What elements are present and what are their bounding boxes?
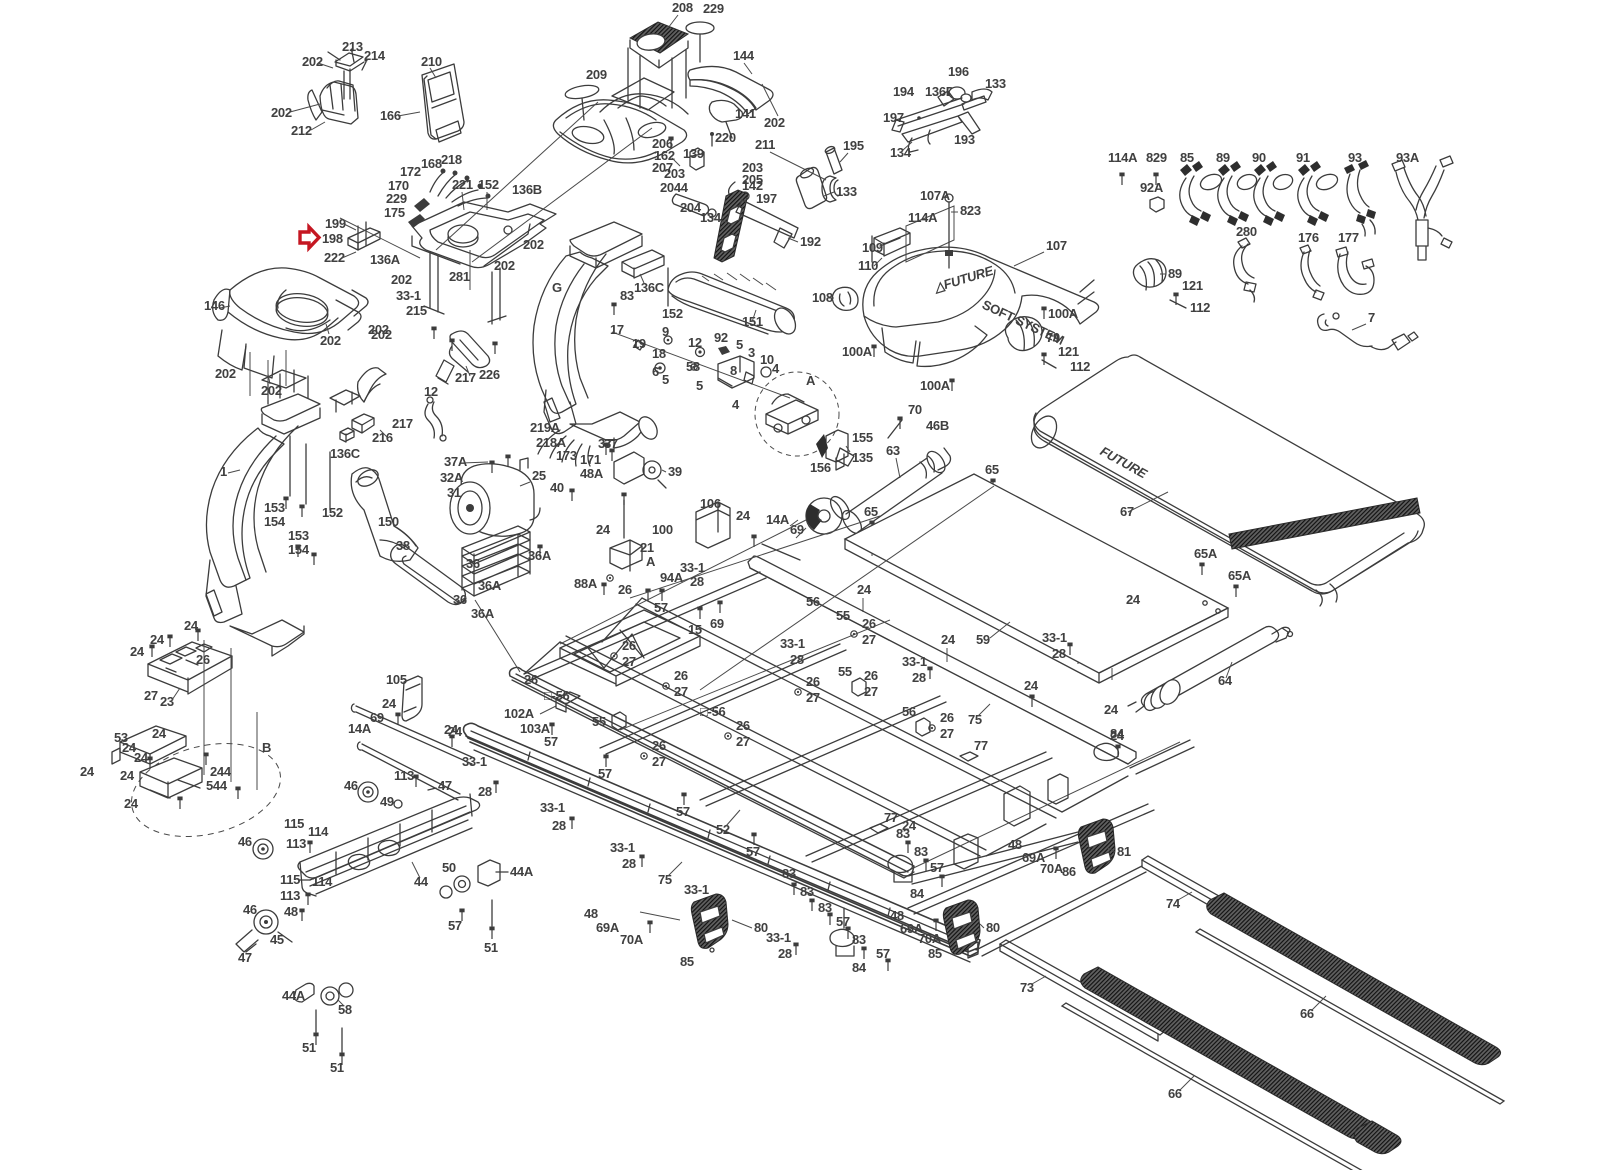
svg-text:197: 197 [756, 191, 777, 206]
svg-text:112: 112 [1070, 359, 1090, 374]
svg-text:133: 133 [985, 76, 1006, 91]
svg-text:70: 70 [908, 402, 922, 417]
svg-text:48: 48 [284, 904, 298, 919]
svg-text:24: 24 [736, 508, 751, 523]
svg-text:133: 133 [836, 184, 857, 199]
svg-text:213: 213 [342, 39, 363, 54]
svg-text:823: 823 [960, 203, 981, 218]
svg-text:112: 112 [1190, 300, 1210, 315]
svg-text:46: 46 [238, 834, 252, 849]
svg-text:196: 196 [948, 64, 969, 79]
svg-text:202: 202 [302, 54, 323, 69]
svg-text:204: 204 [680, 200, 702, 215]
svg-text:544: 544 [206, 778, 228, 793]
svg-text:26: 26 [864, 668, 878, 683]
svg-text:217: 217 [392, 416, 413, 431]
svg-text:113: 113 [286, 836, 306, 851]
svg-text:26: 26 [674, 668, 688, 683]
svg-text:51: 51 [484, 940, 498, 955]
svg-text:28: 28 [1052, 646, 1066, 661]
svg-text:67: 67 [1120, 504, 1134, 519]
svg-text:74: 74 [1166, 896, 1181, 911]
svg-text:114: 114 [312, 874, 333, 889]
svg-text:93: 93 [1348, 150, 1362, 165]
svg-text:281: 281 [449, 269, 470, 284]
svg-text:114A: 114A [1108, 150, 1138, 165]
svg-text:44: 44 [414, 874, 429, 889]
svg-text:24: 24 [596, 522, 611, 537]
svg-text:219A: 219A [530, 420, 561, 435]
svg-text:33-1: 33-1 [780, 636, 805, 651]
svg-text:26: 26 [736, 718, 750, 733]
svg-text:12: 12 [424, 384, 438, 399]
svg-text:33-1: 33-1 [396, 288, 421, 303]
svg-text:199: 199 [325, 216, 346, 231]
svg-text:105: 105 [386, 672, 407, 687]
svg-text:47: 47 [238, 950, 252, 965]
svg-text:208: 208 [672, 0, 693, 15]
svg-text:26: 26 [622, 638, 636, 653]
svg-text:107: 107 [1046, 238, 1067, 253]
svg-text:44A: 44A [510, 864, 534, 879]
svg-text:173: 173 [556, 448, 577, 463]
svg-text:171: 171 [580, 452, 601, 467]
svg-text:27: 27 [940, 726, 954, 741]
svg-text:4: 4 [732, 397, 740, 412]
svg-text:115: 115 [280, 872, 300, 887]
svg-text:64: 64 [1218, 673, 1233, 688]
svg-text:100A: 100A [1048, 306, 1079, 321]
svg-text:83: 83 [914, 844, 928, 859]
svg-text:33-1: 33-1 [680, 560, 705, 575]
svg-text:65: 65 [864, 504, 878, 519]
svg-text:91: 91 [1296, 150, 1310, 165]
svg-text:65: 65 [985, 462, 999, 477]
svg-text:24: 24 [80, 764, 95, 779]
svg-text:3: 3 [748, 345, 755, 360]
svg-text:66: 66 [1168, 1086, 1182, 1101]
svg-text:136C: 136C [634, 280, 665, 295]
svg-text:85: 85 [928, 946, 942, 961]
svg-text:92: 92 [714, 330, 728, 345]
svg-text:48A: 48A [580, 466, 604, 481]
svg-text:100: 100 [652, 522, 673, 537]
svg-text:81: 81 [1117, 844, 1131, 859]
svg-text:85: 85 [680, 954, 694, 969]
svg-text:24: 24 [124, 796, 139, 811]
svg-text:27: 27 [622, 654, 636, 669]
svg-text:33-1: 33-1 [902, 654, 927, 669]
svg-text:27: 27 [652, 754, 666, 769]
svg-text:229: 229 [386, 191, 407, 206]
svg-text:28: 28 [790, 652, 804, 667]
svg-text:26: 26 [652, 738, 666, 753]
svg-text:177: 177 [1338, 230, 1359, 245]
svg-text:100A: 100A [920, 378, 951, 393]
svg-text:221: 221 [452, 177, 473, 192]
svg-text:B: B [262, 740, 271, 755]
svg-text:63: 63 [886, 443, 900, 458]
svg-text:80: 80 [754, 920, 768, 935]
svg-text:28: 28 [778, 946, 792, 961]
svg-text:136C: 136C [330, 446, 361, 461]
svg-text:156: 156 [810, 460, 831, 475]
svg-text:154: 154 [288, 542, 310, 557]
svg-text:21: 21 [640, 540, 654, 555]
svg-text:100A: 100A [842, 344, 873, 359]
svg-text:G: G [552, 280, 562, 295]
svg-text:154: 154 [264, 514, 286, 529]
svg-text:152: 152 [662, 306, 683, 321]
svg-text:40: 40 [550, 480, 564, 495]
svg-text:24: 24 [150, 632, 165, 647]
svg-text:211: 211 [755, 137, 775, 152]
svg-text:24: 24 [448, 724, 463, 739]
svg-text:197: 197 [883, 110, 904, 125]
svg-text:73: 73 [1020, 980, 1034, 995]
svg-text:113: 113 [280, 888, 300, 903]
svg-text:5: 5 [736, 337, 743, 352]
svg-text:□-56: □-56 [700, 704, 726, 719]
svg-text:166: 166 [380, 108, 401, 123]
svg-text:202: 202 [523, 237, 544, 252]
svg-text:36A: 36A [478, 578, 502, 593]
svg-text:58: 58 [686, 359, 700, 374]
svg-text:51: 51 [302, 1040, 316, 1055]
svg-text:46: 46 [243, 902, 257, 917]
svg-text:192: 192 [800, 234, 821, 249]
svg-text:50: 50 [442, 860, 456, 875]
svg-text:86: 86 [1062, 864, 1076, 879]
svg-text:27: 27 [806, 690, 820, 705]
svg-text:152: 152 [478, 177, 499, 192]
svg-text:8: 8 [730, 363, 737, 378]
svg-text:114A: 114A [908, 210, 938, 225]
svg-text:24: 24 [1024, 678, 1039, 693]
svg-text:26: 26 [940, 710, 954, 725]
svg-text:212: 212 [291, 123, 312, 138]
svg-text:70A: 70A [620, 932, 644, 947]
svg-text:17: 17 [610, 322, 624, 337]
svg-text:107A: 107A [920, 188, 951, 203]
svg-text:77: 77 [974, 738, 988, 753]
svg-text:33-1: 33-1 [540, 800, 565, 815]
svg-text:55: 55 [836, 608, 850, 623]
svg-text:47: 47 [438, 778, 452, 793]
svg-text:28: 28 [552, 818, 566, 833]
svg-text:2044: 2044 [660, 180, 689, 195]
svg-text:93A: 93A [1396, 150, 1420, 165]
svg-text:57: 57 [448, 918, 462, 933]
svg-text:24: 24 [382, 696, 397, 711]
svg-text:153: 153 [288, 528, 309, 543]
svg-text:92A: 92A [1140, 180, 1164, 195]
svg-text:46B: 46B [926, 418, 949, 433]
svg-text:24: 24 [120, 768, 135, 783]
svg-text:18: 18 [652, 346, 666, 361]
svg-text:23: 23 [160, 694, 174, 709]
svg-text:28: 28 [690, 574, 704, 589]
svg-text:202: 202 [494, 258, 515, 273]
svg-text:146: 146 [204, 298, 225, 313]
svg-text:168: 168 [421, 156, 442, 171]
svg-text:280: 280 [1236, 224, 1257, 239]
svg-text:1: 1 [220, 464, 227, 479]
svg-text:113: 113 [394, 768, 414, 783]
svg-text:5: 5 [662, 372, 669, 387]
svg-text:70A: 70A [1040, 861, 1064, 876]
svg-text:83: 83 [896, 826, 910, 841]
svg-text:136A: 136A [370, 252, 401, 267]
svg-text:217: 217 [455, 370, 476, 385]
svg-text:4: 4 [772, 361, 780, 376]
svg-text:31: 31 [447, 485, 461, 500]
svg-text:194: 194 [893, 84, 915, 99]
svg-text:65A: 65A [1194, 546, 1218, 561]
svg-text:33-1: 33-1 [462, 754, 487, 769]
svg-text:172: 172 [400, 164, 421, 179]
svg-text:27: 27 [674, 684, 688, 699]
svg-text:56: 56 [806, 594, 820, 609]
svg-text:□-56: □-56 [544, 688, 570, 703]
svg-text:244: 244 [210, 764, 232, 779]
svg-text:135: 135 [852, 450, 873, 465]
svg-text:33-1: 33-1 [1042, 630, 1067, 645]
svg-text:57: 57 [654, 600, 668, 615]
svg-text:141: 141 [735, 106, 756, 121]
svg-text:84: 84 [910, 886, 925, 901]
svg-text:134: 134 [700, 210, 722, 225]
svg-text:44A: 44A [282, 988, 306, 1003]
svg-text:229: 229 [703, 1, 724, 16]
svg-text:80: 80 [986, 920, 1000, 935]
svg-text:26: 26 [806, 674, 820, 689]
svg-text:5: 5 [696, 378, 703, 393]
svg-text:210: 210 [421, 54, 442, 69]
svg-text:27: 27 [144, 688, 158, 703]
svg-text:39: 39 [668, 464, 682, 479]
svg-text:26: 26 [618, 582, 632, 597]
svg-text:89: 89 [1168, 266, 1182, 281]
svg-text:58: 58 [338, 1002, 352, 1017]
svg-text:144: 144 [733, 48, 755, 63]
svg-text:57: 57 [746, 844, 760, 859]
svg-text:66: 66 [1300, 1006, 1314, 1021]
svg-text:829: 829 [1146, 150, 1167, 165]
svg-text:84: 84 [852, 960, 867, 975]
svg-text:7: 7 [1368, 310, 1375, 325]
svg-text:84: 84 [1110, 726, 1125, 741]
svg-text:150: 150 [378, 514, 399, 529]
svg-text:83: 83 [782, 866, 796, 881]
svg-text:65A: 65A [1228, 568, 1252, 583]
svg-text:24: 24 [1104, 702, 1119, 717]
svg-text:218: 218 [441, 152, 462, 167]
svg-text:202: 202 [271, 105, 292, 120]
svg-text:56: 56 [902, 704, 916, 719]
svg-text:202: 202 [764, 115, 785, 130]
svg-text:176: 176 [1298, 230, 1319, 245]
svg-text:59: 59 [976, 632, 990, 647]
svg-text:202: 202 [320, 333, 341, 348]
svg-text:198: 198 [322, 231, 343, 246]
svg-text:46: 46 [344, 778, 358, 793]
svg-text:209: 209 [586, 67, 607, 82]
svg-text:26: 26 [196, 652, 210, 667]
svg-text:70A: 70A [918, 931, 942, 946]
svg-text:27: 27 [736, 734, 750, 749]
svg-text:69A: 69A [596, 920, 620, 935]
svg-text:202: 202 [391, 272, 412, 287]
svg-text:114: 114 [308, 824, 329, 839]
svg-text:33-1: 33-1 [610, 840, 635, 855]
svg-text:49: 49 [380, 794, 394, 809]
svg-text:28: 28 [478, 784, 492, 799]
svg-text:69: 69 [710, 616, 724, 631]
svg-text:202: 202 [215, 366, 236, 381]
svg-text:106: 106 [700, 496, 721, 511]
svg-text:14A: 14A [348, 721, 372, 736]
svg-text:83: 83 [620, 288, 634, 303]
svg-text:26: 26 [862, 616, 876, 631]
svg-text:A: A [806, 373, 816, 388]
svg-text:220: 220 [715, 130, 736, 145]
svg-text:24: 24 [122, 740, 137, 755]
svg-text:155: 155 [852, 430, 873, 445]
svg-text:175: 175 [384, 205, 405, 220]
svg-text:136B: 136B [512, 182, 542, 197]
svg-text:115: 115 [284, 816, 304, 831]
svg-text:79: 79 [1046, 330, 1060, 345]
svg-text:32A: 32A [440, 470, 464, 485]
svg-text:48: 48 [584, 906, 598, 921]
svg-text:222: 222 [324, 250, 345, 265]
svg-text:226: 226 [479, 367, 500, 382]
svg-text:33-1: 33-1 [684, 882, 709, 897]
svg-text:214: 214 [364, 48, 386, 63]
svg-text:57: 57 [544, 734, 558, 749]
svg-text:152: 152 [322, 505, 343, 520]
svg-text:14A: 14A [766, 512, 790, 527]
svg-text:36: 36 [453, 592, 467, 607]
svg-text:121: 121 [1182, 278, 1203, 293]
svg-text:A: A [646, 554, 656, 569]
svg-text:37A: 37A [444, 454, 468, 469]
svg-text:27: 27 [864, 684, 878, 699]
svg-text:85: 85 [1180, 150, 1194, 165]
svg-text:215: 215 [406, 303, 427, 318]
svg-text:24: 24 [941, 632, 956, 647]
svg-text:28: 28 [622, 856, 636, 871]
svg-text:38: 38 [396, 538, 410, 553]
svg-text:121: 121 [1058, 344, 1079, 359]
svg-text:57: 57 [598, 766, 612, 781]
svg-text:36: 36 [466, 556, 480, 571]
svg-text:33-1: 33-1 [766, 930, 791, 945]
svg-text:153: 153 [264, 500, 285, 515]
svg-text:24: 24 [134, 750, 149, 765]
svg-text:24: 24 [152, 726, 167, 741]
svg-text:24: 24 [857, 582, 872, 597]
svg-text:28: 28 [912, 670, 926, 685]
svg-text:83: 83 [800, 884, 814, 899]
svg-text:55: 55 [838, 664, 852, 679]
svg-text:195: 195 [843, 138, 864, 153]
svg-text:57: 57 [676, 804, 690, 819]
svg-text:27: 27 [862, 632, 876, 647]
svg-text:24: 24 [184, 618, 199, 633]
svg-text:89: 89 [1216, 150, 1230, 165]
svg-text:102A: 102A [504, 706, 535, 721]
svg-text:202: 202 [368, 322, 389, 337]
svg-text:24: 24 [130, 644, 145, 659]
svg-text:24: 24 [1126, 592, 1141, 607]
svg-text:203: 203 [664, 166, 685, 181]
svg-text:25: 25 [532, 468, 546, 483]
svg-text:55: 55 [592, 714, 606, 729]
svg-text:90: 90 [1252, 150, 1266, 165]
svg-text:88A: 88A [574, 576, 598, 591]
svg-text:15: 15 [688, 622, 702, 637]
svg-text:139: 139 [683, 146, 704, 161]
